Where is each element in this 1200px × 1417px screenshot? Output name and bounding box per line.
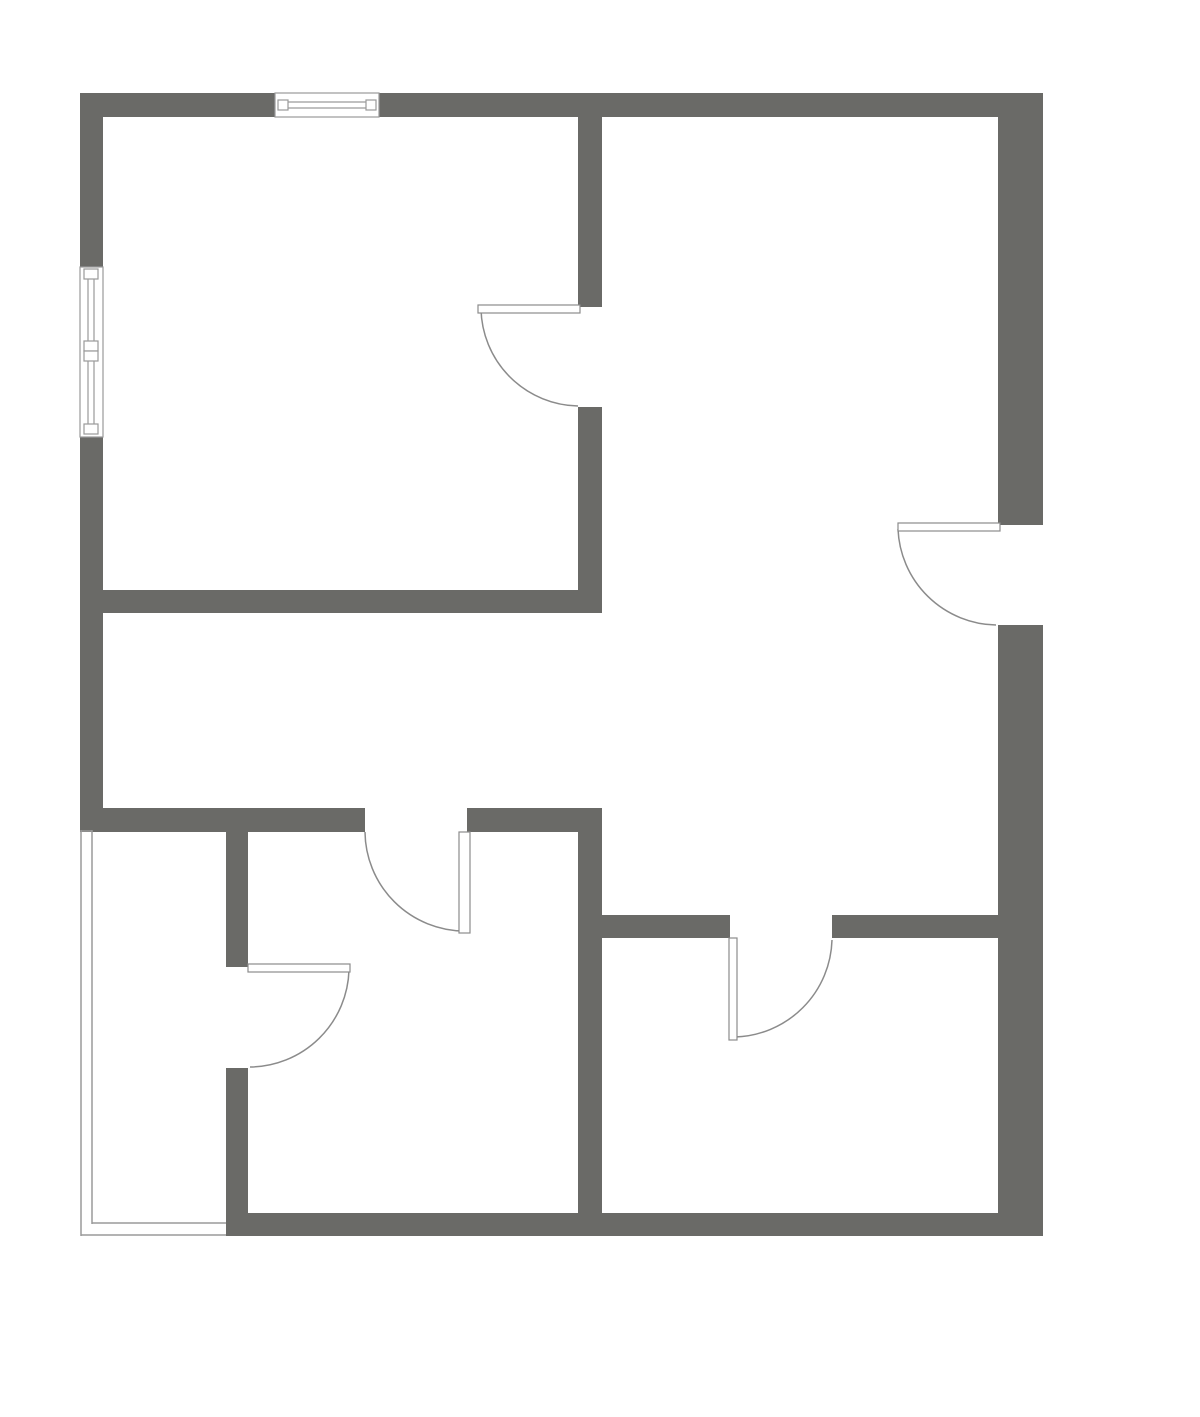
- balcony-divider-above-door: [226, 808, 248, 967]
- top-window-tick-0: [278, 100, 288, 110]
- top-wall-left-of-window: [80, 93, 275, 117]
- floor-plan-svg: [0, 0, 1200, 1417]
- left-window-tick-1: [84, 424, 98, 434]
- floor-plan-page: [0, 0, 1200, 1417]
- upper-left-room-south-wall: [80, 590, 602, 613]
- left-window-tick-3: [84, 351, 98, 361]
- center-divider-wall: [578, 832, 602, 1236]
- lower-right-room-door-leaf: [729, 938, 737, 1040]
- balcony-divider-below-door: [226, 1068, 248, 1236]
- left-wall-below-window: [80, 437, 103, 830]
- top-wall-right-of-window: [379, 93, 1043, 117]
- floor-plan-drawing: [0, 0, 1200, 1417]
- upper-divider-below-door: [578, 407, 602, 613]
- right-wall-below-door: [998, 625, 1043, 1236]
- lower-right-room-wall-east-of-door: [832, 915, 998, 938]
- right-room-door-leaf: [898, 523, 1000, 531]
- left-window-tick-0: [84, 269, 98, 279]
- top-window-frame: [275, 93, 379, 117]
- upper-left-room-door-leaf: [478, 305, 580, 313]
- left-window: [80, 267, 103, 437]
- living-south-wall-west-of-door: [80, 808, 365, 832]
- right-wall-above-door: [998, 93, 1043, 525]
- top-window-tick-1: [366, 100, 376, 110]
- bottom-wall: [248, 1213, 1043, 1236]
- lower-right-room-wall-west-of-door: [602, 915, 730, 938]
- upper-divider-above-door: [578, 117, 602, 307]
- left-wall-above-window: [80, 93, 103, 267]
- lower-middle-room-door-leaf: [459, 832, 470, 933]
- top-window: [275, 93, 379, 117]
- living-south-wall-east-of-door: [467, 808, 602, 832]
- balcony-hall-door-leaf: [248, 964, 350, 972]
- left-window-tick-2: [84, 341, 98, 351]
